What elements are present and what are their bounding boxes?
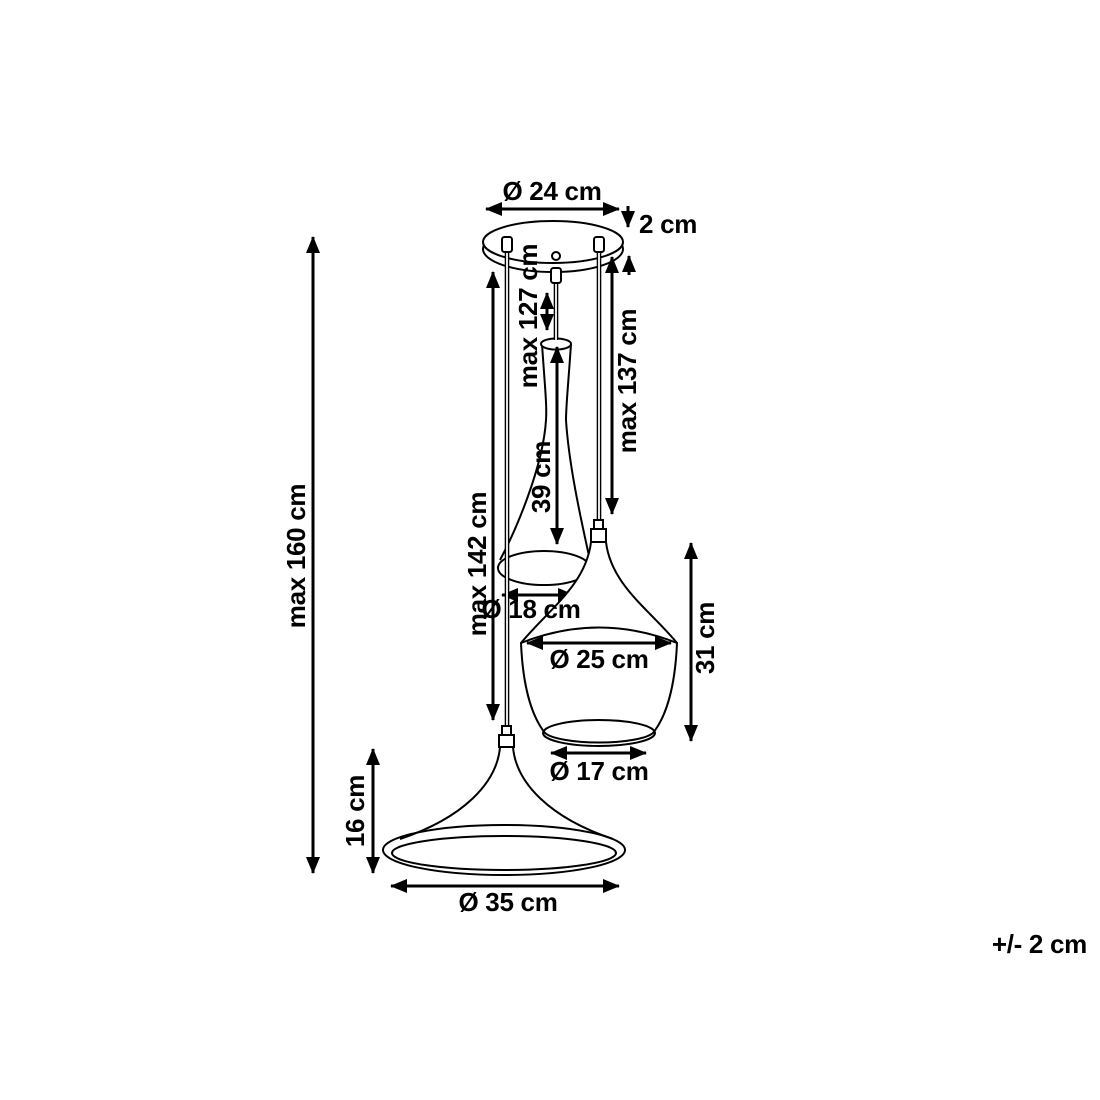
label-tolerance: +/- 2 cm [992,929,1087,959]
label-fat-shade-height: 31 cm [690,602,720,674]
fat-shade-outline [521,520,677,746]
label-canopy-height: 2 cm [639,209,697,239]
wide-shade-outline [383,726,625,875]
label-fat-shade-drop: max 137 cm [612,309,642,453]
label-overall-height: max 160 cm [281,484,311,628]
label-tall-shade-height: 39 cm [526,441,556,513]
canopy-screw-hole [552,252,560,260]
label-tall-shade-opening: Ø 18 cm [481,594,580,624]
label-canopy-diameter: Ø 24 cm [502,176,601,206]
label-tall-shade-drop: max 127 cm [513,244,543,388]
pendant-lamp-dimension-diagram: Ø 24 cm 2 cm max 160 cm 16 cm max 142 cm… [0,0,1100,1100]
dimension-labels: Ø 24 cm 2 cm max 160 cm 16 cm max 142 cm… [281,176,1087,959]
label-wide-shade-height: 16 cm [340,775,370,847]
diagram-svg: Ø 24 cm 2 cm max 160 cm 16 cm max 142 cm… [0,0,1100,1100]
label-wide-shade-diameter: Ø 35 cm [458,887,557,917]
label-fat-shade-opening: Ø 17 cm [549,756,648,786]
label-fat-shade-diameter: Ø 25 cm [549,644,648,674]
